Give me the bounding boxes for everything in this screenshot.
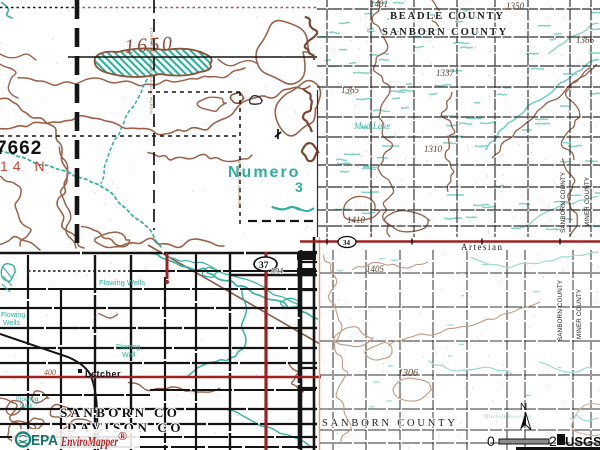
- svg-text:Flowing: Flowing: [1, 312, 25, 319]
- svg-text:USGS: USGS: [565, 434, 600, 449]
- svg-text:BEADLE COUNTY: BEADLE COUNTY: [390, 11, 505, 22]
- svg-text:2: 2: [549, 433, 557, 449]
- svg-text:400: 400: [44, 368, 56, 377]
- svg-text:EPA: EPA: [31, 432, 58, 449]
- svg-text:SANBORN COUNTY: SANBORN COUNTY: [322, 418, 458, 429]
- svg-text:Artesian: Artesian: [461, 242, 504, 252]
- svg-text:FORESTBURG QUADRANGLE HURON: FORESTBURG QUADRANGLE HURON: [149, 28, 154, 114]
- svg-text:7662: 7662: [0, 138, 42, 159]
- svg-text:Well: Well: [122, 352, 136, 359]
- svg-text:Flowing: Flowing: [16, 396, 39, 403]
- svg-text:MINER COUNTY: MINER COUNTY: [584, 177, 591, 227]
- svg-text:Well: Well: [20, 403, 33, 410]
- svg-text:Flowing Wells: Flowing Wells: [99, 278, 145, 287]
- svg-text:MITCHELL SANBORN: MITCHELL SANBORN: [237, 160, 242, 209]
- svg-text:1337: 1337: [436, 68, 455, 78]
- svg-text:SANBORN CO: SANBORN CO: [60, 405, 180, 420]
- svg-text:1306: 1306: [398, 368, 418, 379]
- svg-text:Wells: Wells: [3, 320, 20, 327]
- svg-text:SANBORN COUNTY: SANBORN COUNTY: [560, 172, 567, 233]
- svg-text:Flowing: Flowing: [116, 344, 140, 351]
- svg-text:1405: 1405: [366, 264, 385, 274]
- svg-text:N: N: [520, 402, 527, 413]
- svg-text:34: 34: [343, 239, 351, 247]
- svg-text:SANBORN COUNTY: SANBORN COUNTY: [557, 280, 564, 341]
- svg-text:Letcher: Letcher: [85, 369, 121, 379]
- svg-text:37: 37: [259, 261, 269, 271]
- svg-text:Mud Lake: Mud Lake: [353, 121, 390, 131]
- svg-text:14 N: 14 N: [0, 158, 50, 174]
- svg-text:MINER COUNTY: MINER COUNTY: [576, 289, 583, 339]
- svg-text:1365: 1365: [341, 85, 360, 95]
- svg-text:1350: 1350: [506, 1, 525, 11]
- svg-text:3: 3: [295, 179, 303, 195]
- svg-text:SANBORN COUNTY: SANBORN COUNTY: [382, 27, 508, 38]
- svg-text:1401: 1401: [370, 0, 388, 9]
- svg-text:®: ®: [118, 429, 127, 443]
- svg-text:1366: 1366: [576, 35, 595, 45]
- svg-text:1410: 1410: [347, 215, 366, 225]
- svg-text:394: 394: [270, 267, 283, 276]
- svg-text:1310: 1310: [424, 144, 443, 154]
- svg-text:0: 0: [487, 433, 495, 449]
